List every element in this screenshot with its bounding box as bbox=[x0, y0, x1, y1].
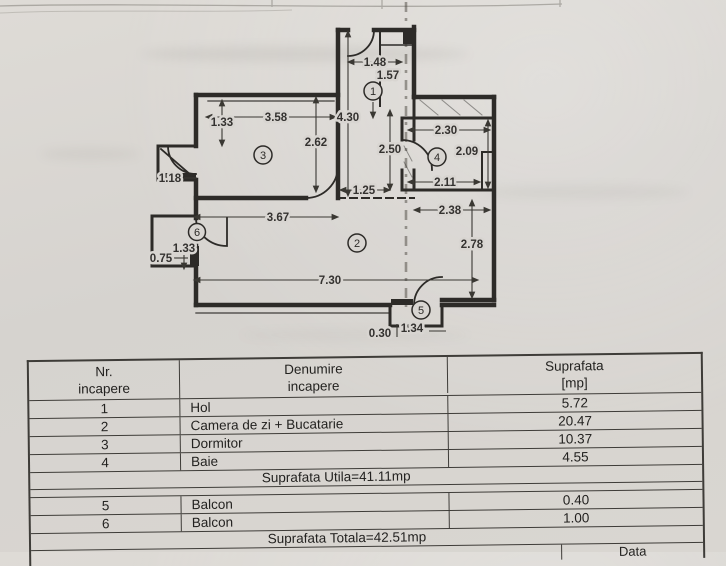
dim-2.38: 2.38 bbox=[439, 205, 462, 217]
room-label-living: 2 bbox=[354, 238, 360, 250]
dim-2.50: 2.50 bbox=[379, 144, 401, 156]
dim-2.78: 2.78 bbox=[461, 239, 484, 251]
dim-3.58: 3.58 bbox=[265, 112, 288, 124]
dim-1.48: 1.48 bbox=[364, 57, 387, 69]
room-area-cell: 20.47 bbox=[448, 411, 701, 431]
room-label-balcon5: 5 bbox=[418, 305, 424, 317]
room-area-cell: 10.37 bbox=[449, 429, 702, 449]
room-area-cell: 1.00 bbox=[450, 508, 703, 528]
room-label-balcon6: 6 bbox=[194, 227, 200, 239]
dim-0.30: 0.30 bbox=[369, 328, 391, 340]
room-number-cell: 5 bbox=[30, 496, 181, 515]
dim-2.62: 2.62 bbox=[305, 137, 327, 149]
room-name-cell: Baie bbox=[181, 450, 449, 470]
dim-0.75: 0.75 bbox=[150, 253, 173, 265]
dim-2.11: 2.11 bbox=[434, 177, 456, 189]
dim-2.30: 2.30 bbox=[435, 125, 457, 137]
total-text: Suprafata Totala=42.51mp bbox=[268, 529, 427, 547]
subtotal-text: Suprafata Utila=41.11mp bbox=[262, 468, 411, 486]
dim-1.33-dormitor: 1.33 bbox=[211, 117, 233, 129]
room-number-cell: 1 bbox=[29, 399, 180, 418]
dim-4.30: 4.30 bbox=[337, 112, 359, 124]
room-number-cell: 3 bbox=[30, 435, 181, 454]
room-number-cell: 4 bbox=[30, 453, 181, 472]
room-label-hol: 1 bbox=[370, 86, 376, 98]
room-name-cell: Hol bbox=[180, 396, 448, 416]
dim-1.18: 1.18 bbox=[159, 173, 182, 185]
room-name-cell: Balcon bbox=[182, 511, 450, 531]
area-table: Nr. incapere Denumire incapere Suprafata… bbox=[27, 352, 705, 566]
room-area-cell: 0.40 bbox=[449, 490, 702, 510]
room-area-cell: 5.72 bbox=[448, 393, 701, 413]
header-suprafata: Suprafata [mp] bbox=[448, 354, 701, 395]
dim-3.67: 3.67 bbox=[267, 212, 289, 224]
room-name-cell: Balcon bbox=[181, 493, 449, 513]
dim-1.25: 1.25 bbox=[353, 185, 376, 197]
scanned-floorplan-page: 1.48 1.57 4.30 2.50 1.33 3.58 2.62 1.18 … bbox=[0, 0, 726, 552]
header-denumire-line2: incapere bbox=[180, 376, 447, 396]
room-label-baie: 4 bbox=[434, 152, 440, 164]
room-name-cell: Dormitor bbox=[181, 432, 449, 452]
room-area-cell: 4.55 bbox=[449, 447, 702, 467]
data-label: Data bbox=[562, 543, 703, 560]
room-number-cell: 2 bbox=[29, 417, 180, 436]
room-number-cell: 6 bbox=[31, 514, 182, 533]
floor-plan: 1.48 1.57 4.30 2.50 1.33 3.58 2.62 1.18 … bbox=[0, 0, 726, 352]
header-nr-line2: incapere bbox=[29, 379, 179, 398]
dim-1.33-balcon: 1.33 bbox=[173, 243, 195, 255]
dim-2.09: 2.09 bbox=[456, 146, 478, 158]
header-denumire-incapere: Denumire incapere bbox=[180, 357, 448, 396]
room-name-cell: Camera de zi + Bucatarie bbox=[180, 414, 448, 434]
dim-1.34: 1.34 bbox=[401, 323, 424, 335]
header-nr-line1: Nr. bbox=[29, 362, 179, 381]
room-label-dormitor: 3 bbox=[260, 150, 266, 162]
dim-1.57: 1.57 bbox=[377, 70, 399, 82]
header-suprafata-line2: [mp] bbox=[448, 373, 701, 393]
dim-7.30: 7.30 bbox=[319, 275, 341, 287]
page-top-remnant-lines bbox=[0, 0, 562, 13]
header-nr-incapere: Nr. incapere bbox=[29, 360, 180, 400]
